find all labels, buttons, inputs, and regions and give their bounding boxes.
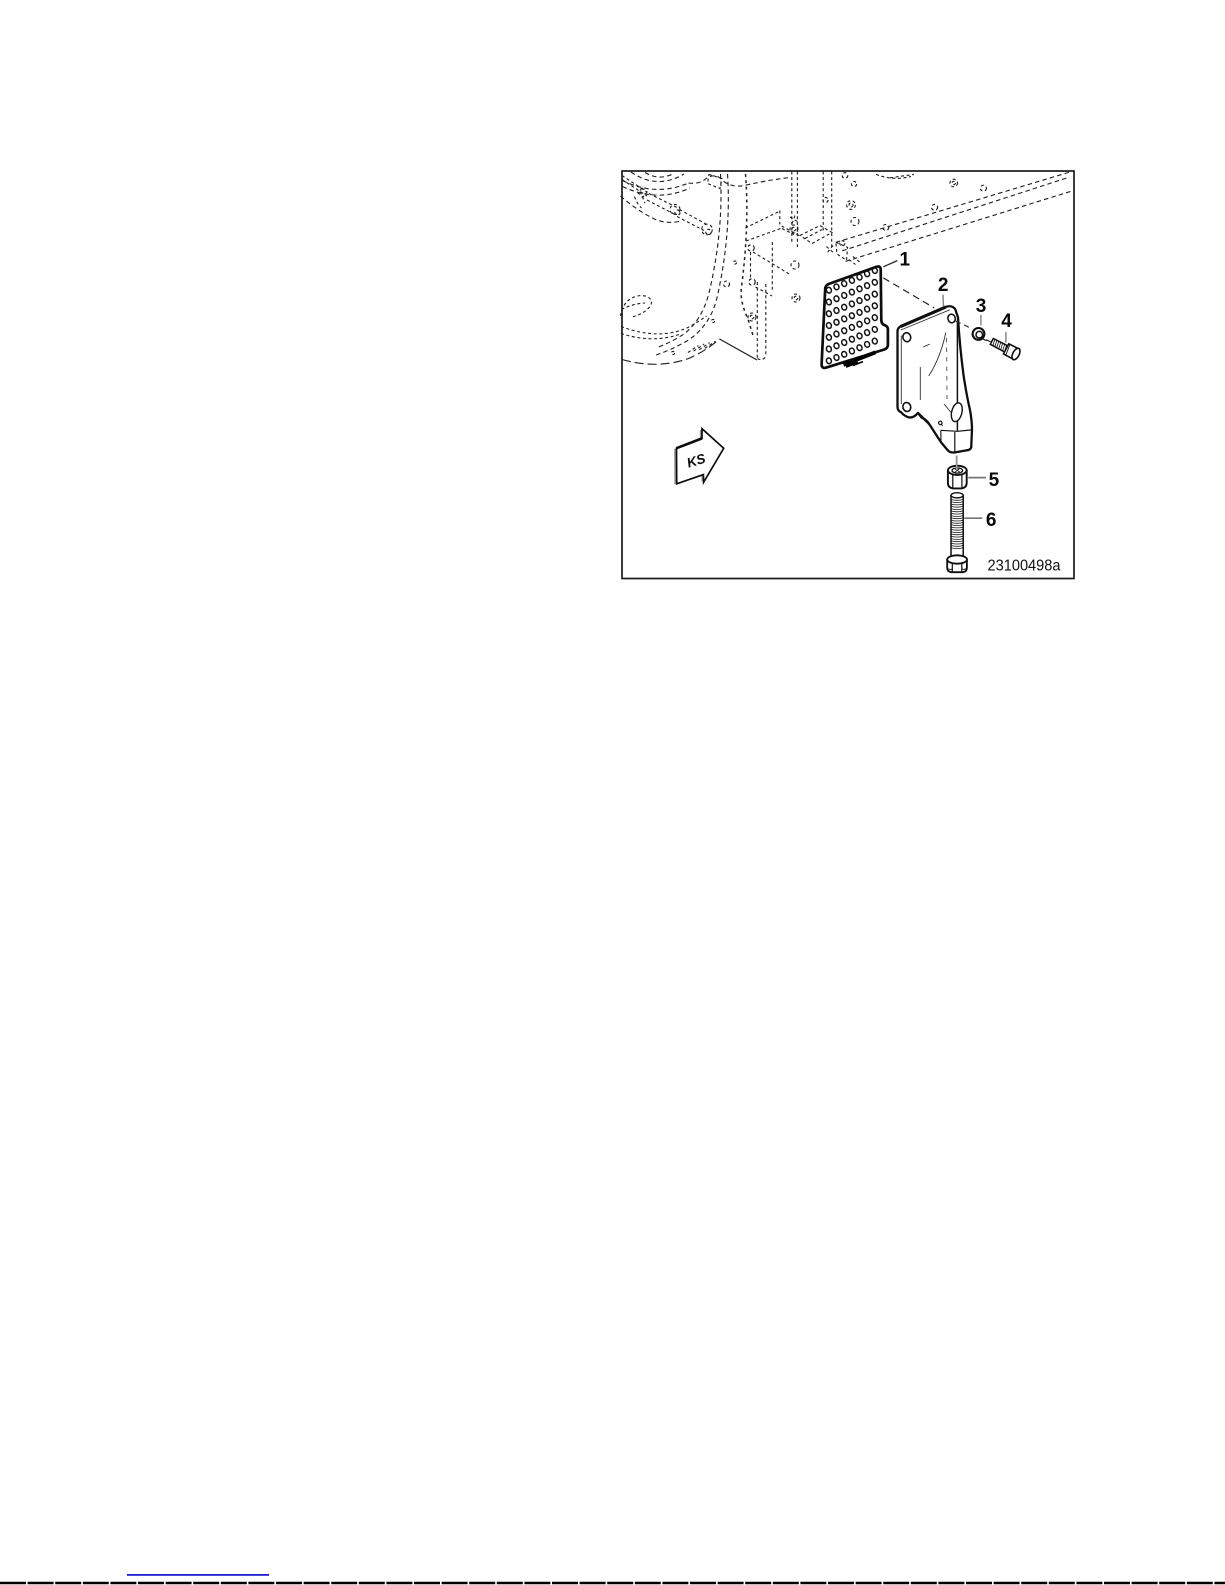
svg-text:2: 2 [938, 275, 949, 296]
svg-text:1: 1 [900, 249, 911, 270]
svg-text:4: 4 [1001, 311, 1012, 332]
svg-text:6: 6 [986, 510, 997, 531]
svg-text:23100498a: 23100498a [988, 557, 1061, 574]
svg-text:3: 3 [976, 296, 987, 317]
svg-text:5: 5 [989, 470, 1000, 491]
